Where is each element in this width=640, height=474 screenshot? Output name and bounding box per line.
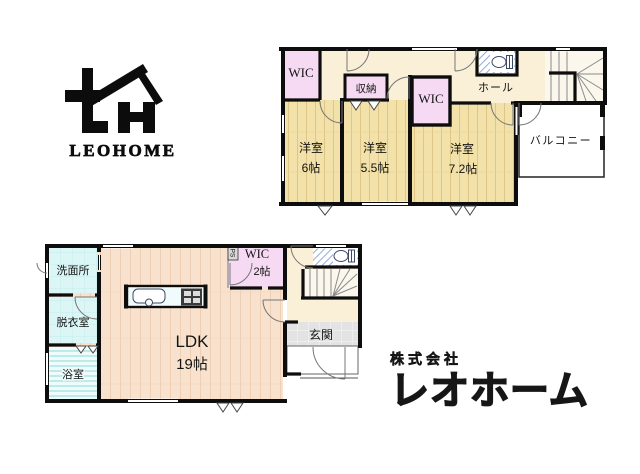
logo-wordmark: LEOHOME	[69, 141, 176, 160]
toilet-icon-1f	[334, 250, 355, 262]
storage-label: 収納	[356, 82, 377, 95]
hall-label: ホール	[478, 81, 514, 94]
sink-icon	[133, 289, 165, 306]
wic-2f-left-label: WIC	[288, 65, 313, 80]
room6-size: 6帖	[302, 160, 321, 175]
logo-letter-l-foot	[93, 121, 108, 133]
ldk-size: 19帖	[176, 356, 208, 373]
wic-2f-mid-label: WIC	[418, 91, 443, 106]
company-prefix: 株式会社	[390, 351, 462, 367]
toilet-2f	[477, 49, 517, 75]
ps-label: PS	[229, 249, 236, 258]
balcony-label: バルコニー	[530, 134, 592, 147]
logo-house-icon	[65, 64, 163, 133]
stairs-1f	[303, 269, 358, 298]
company-name: レオホーム	[390, 370, 589, 413]
room6-name: 洋室	[299, 140, 323, 155]
floor-plan-2f: WIC 収納 WIC ホール 洋室 6帖 洋室 5.5帖 洋室 7.2帖 バルコ…	[279, 47, 607, 216]
wic-1f-name: WIC	[245, 247, 269, 261]
company-name-block: 株式会社 レオホーム	[390, 351, 589, 413]
washroom-label: 洗面所	[57, 264, 90, 277]
floor-plan-page: LEOHOME	[0, 0, 640, 474]
ps-duct: PS	[228, 246, 238, 260]
floor-plan-1f: PS	[37, 244, 362, 413]
room72-size: 7.2帖	[449, 161, 478, 176]
room72-name: 洋室	[450, 141, 474, 156]
toilet-icon-2f	[492, 56, 513, 69]
logo-roof-right	[134, 66, 163, 105]
leohome-logo: LEOHOME	[65, 64, 177, 160]
room55-size: 5.5帖	[361, 160, 390, 175]
stove-icon	[181, 289, 202, 306]
room55-name: 洋室	[363, 140, 387, 155]
logo-letter-l-cross	[65, 90, 100, 102]
entrance-label: 玄関	[309, 327, 333, 342]
ldk-name: LDK	[175, 332, 209, 351]
logo-letter-h-bar	[128, 112, 145, 122]
toilet-1f	[313, 246, 358, 266]
floor-plan-drawing: LEOHOME	[0, 0, 640, 474]
dressing-label: 脱衣室	[57, 315, 90, 329]
wic-1f-size: 2帖	[253, 265, 270, 278]
bath-label: 浴室	[62, 367, 84, 381]
kitchen-counter	[124, 285, 208, 309]
